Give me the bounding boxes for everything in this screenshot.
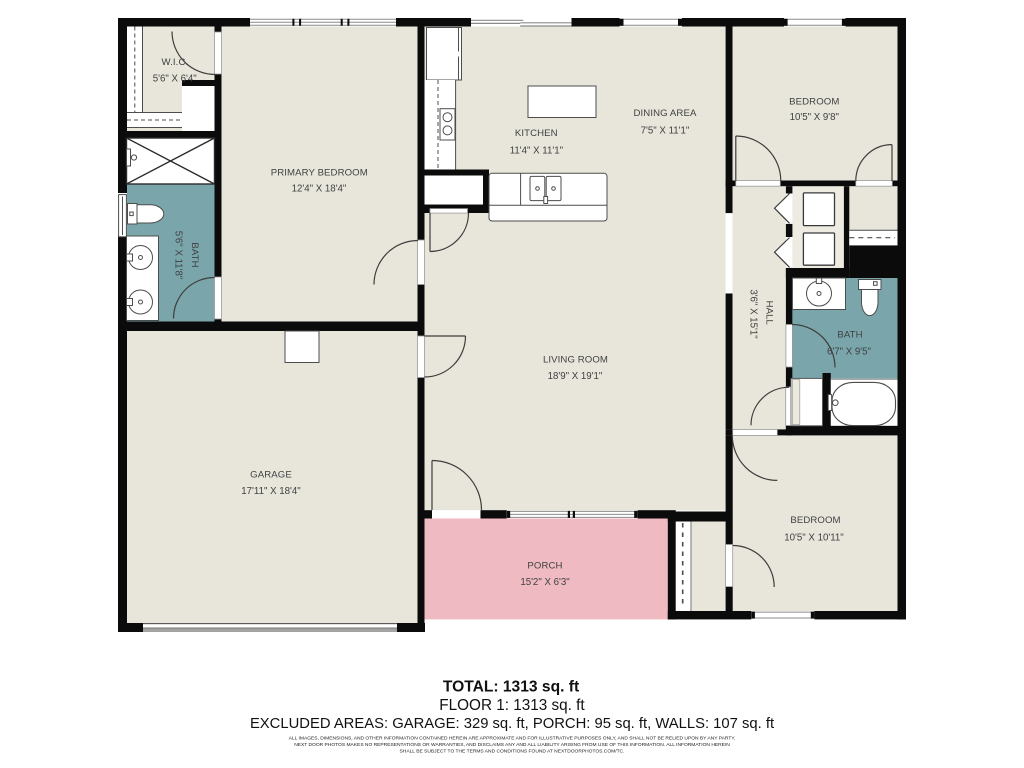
svg-text:BEDROOM: BEDROOM	[790, 515, 840, 526]
svg-text:ALL IMAGES, DIMENSIONS, AND OT: ALL IMAGES, DIMENSIONS, AND OTHER INFORM…	[289, 736, 736, 742]
svg-text:7'5" X 11'1": 7'5" X 11'1"	[641, 126, 690, 137]
svg-text:FLOOR 1: 1313 sq. ft: FLOOR 1: 1313 sq. ft	[439, 697, 585, 714]
svg-text:TOTAL: 1313 sq. ft: TOTAL: 1313 sq. ft	[443, 679, 579, 696]
svg-text:BATH: BATH	[189, 242, 200, 267]
svg-text:NEXT DOOR PHOTOS MAKES NO REPR: NEXT DOOR PHOTOS MAKES NO REPRESENTATION…	[294, 742, 730, 748]
svg-text:PRIMARY BEDROOM: PRIMARY BEDROOM	[271, 168, 368, 179]
svg-text:HALL: HALL	[763, 301, 774, 326]
svg-text:SHALL BE SUBJECT TO THE TERMS: SHALL BE SUBJECT TO THE TERMS AND CONDIT…	[400, 749, 625, 755]
svg-text:5'6" X 6'4": 5'6" X 6'4"	[153, 74, 198, 85]
svg-text:LIVING ROOM: LIVING ROOM	[543, 355, 608, 366]
svg-text:BATH: BATH	[837, 330, 862, 341]
svg-text:GARAGE: GARAGE	[250, 470, 292, 481]
svg-text:10'5" X 9'8": 10'5" X 9'8"	[790, 112, 840, 123]
svg-text:17'11" X 18'4": 17'11" X 18'4"	[241, 486, 301, 497]
svg-text:11'4" X 11'1": 11'4" X 11'1"	[510, 145, 564, 156]
svg-text:DINING AREA: DINING AREA	[634, 108, 697, 119]
svg-text:EXCLUDED AREAS: GARAGE: 329 sq: EXCLUDED AREAS: GARAGE: 329 sq. ft, PORC…	[250, 716, 774, 732]
svg-text:15'2" X 6'3": 15'2" X 6'3"	[520, 577, 570, 588]
svg-text:BEDROOM: BEDROOM	[789, 96, 839, 107]
svg-text:5'6" X 11'8": 5'6" X 11'8"	[172, 231, 183, 280]
svg-text:W.I.C.: W.I.C.	[162, 57, 189, 68]
svg-text:KITCHEN: KITCHEN	[515, 128, 558, 139]
svg-text:18'9" X 19'1": 18'9" X 19'1"	[548, 371, 603, 382]
svg-text:6'7" X 9'5": 6'7" X 9'5"	[827, 347, 872, 358]
svg-text:12'4" X 18'4": 12'4" X 18'4"	[292, 183, 347, 194]
svg-text:3'6" X 15'1": 3'6" X 15'1"	[747, 289, 758, 339]
svg-text:10'5" X 10'11": 10'5" X 10'11"	[784, 532, 844, 543]
svg-text:PORCH: PORCH	[527, 561, 562, 572]
